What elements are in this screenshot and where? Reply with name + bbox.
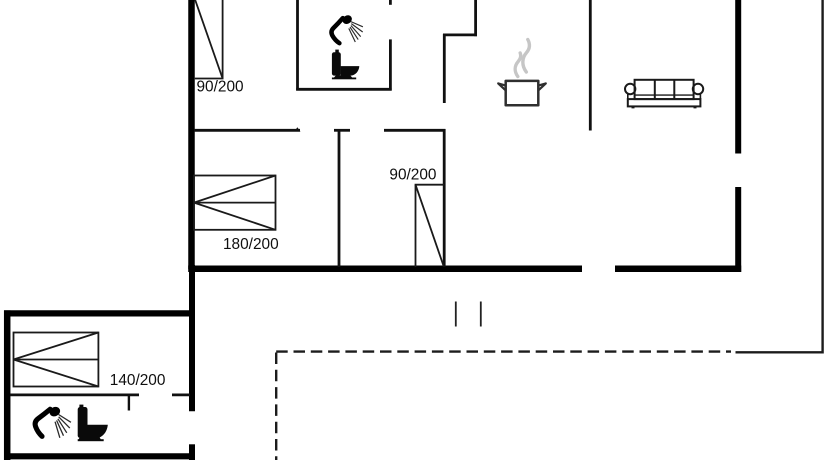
svg-text:90/200: 90/200 [389,166,436,183]
svg-text:180/200: 180/200 [223,236,279,253]
svg-text:140/200: 140/200 [110,372,166,389]
svg-text:90/200: 90/200 [197,79,244,96]
